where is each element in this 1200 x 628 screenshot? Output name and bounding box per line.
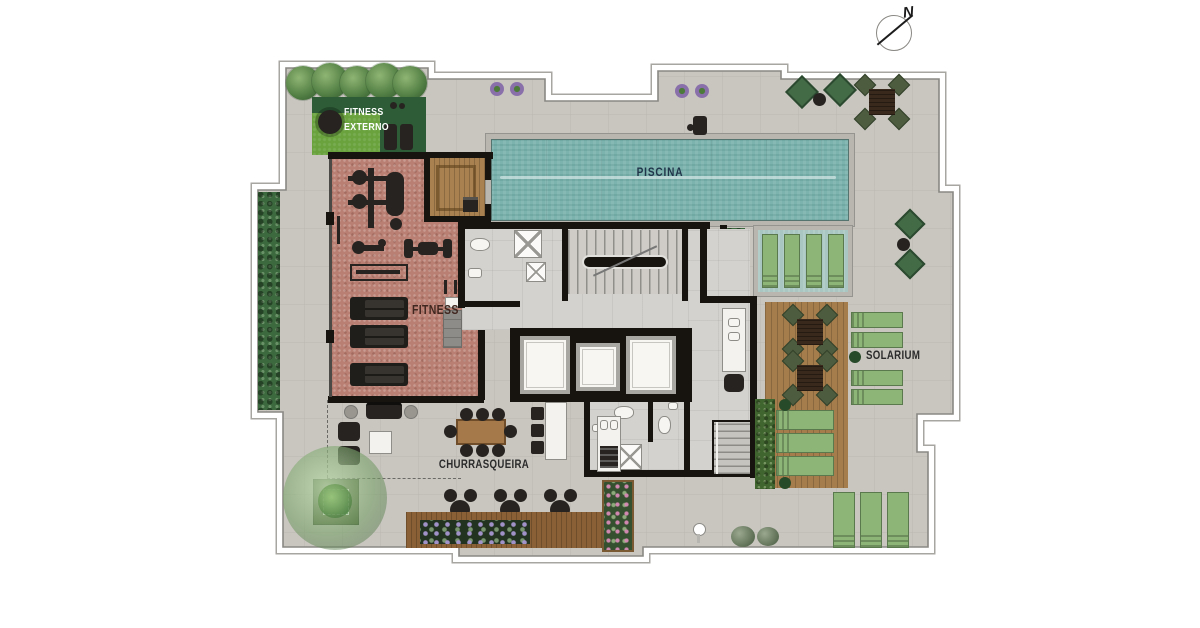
sun-lounger	[776, 456, 834, 476]
dining-chair	[476, 408, 489, 421]
in-pool-lounger	[828, 234, 844, 288]
side-table	[813, 93, 826, 106]
wall	[584, 396, 590, 476]
bush-icon	[757, 527, 779, 546]
sun-lounger	[887, 492, 909, 548]
smith-machine	[350, 264, 408, 281]
wall	[424, 158, 430, 222]
in-pool-lounger	[806, 234, 822, 288]
sun-lounger	[851, 370, 903, 386]
bistro-chair	[464, 489, 477, 502]
patio-table	[869, 89, 895, 115]
patio-table-set	[785, 353, 835, 403]
flower-pot-icon	[510, 82, 524, 96]
bbq-stool	[531, 424, 544, 437]
flower-planter	[420, 520, 530, 544]
sun-lounger	[833, 492, 855, 548]
treadmill	[350, 363, 408, 386]
sauna-heater	[463, 197, 478, 212]
dining-chair	[492, 444, 505, 457]
weight-plate	[404, 239, 413, 258]
bbq-counter	[545, 402, 567, 460]
compass-north-label: N	[902, 3, 915, 21]
shaft-x-box	[526, 262, 546, 282]
gym-bench	[418, 242, 438, 255]
elevator-cab	[626, 336, 676, 394]
elevator-cab	[520, 336, 570, 394]
sun-lounger	[851, 312, 903, 328]
hedge-strip-left	[258, 192, 280, 410]
sun-lounger	[776, 410, 834, 430]
treadmill-belt	[365, 328, 404, 345]
dining-chair	[444, 425, 457, 438]
dining-chair	[492, 408, 505, 421]
plant-pot-icon	[849, 351, 861, 363]
staircase-down	[712, 420, 752, 476]
wall-mounted-bar	[337, 216, 340, 244]
dining-chair	[476, 444, 489, 457]
light-pole-stem	[697, 534, 700, 543]
wall	[648, 396, 653, 442]
bbq-stool	[531, 407, 544, 420]
shaft-x-box	[618, 444, 642, 470]
gym-seat	[390, 218, 402, 230]
patio-table	[797, 319, 823, 345]
weight-plate	[352, 170, 367, 185]
solarium-label: SOLARIUM	[866, 350, 920, 362]
weight-plate	[352, 194, 367, 209]
churrasqueira-label: CHURRASQUEIRA	[430, 459, 538, 471]
sun-lounger	[851, 389, 903, 405]
grill-icon	[600, 446, 618, 468]
floorplan-canvas: FITNESS EXTERNO PISCINA	[0, 0, 1200, 628]
side-table	[897, 238, 910, 251]
outdoor-fitness-label-line1: FITNESS	[344, 106, 404, 118]
gym-machine	[352, 238, 386, 258]
dining-chair	[504, 425, 517, 438]
treadmill	[350, 297, 408, 320]
outdoor-fitness-label-line2: EXTERNO	[344, 121, 404, 133]
pouf	[344, 405, 358, 419]
flower-pot-icon	[675, 84, 689, 98]
gym-multistation	[344, 166, 408, 236]
plant-pot-icon	[779, 399, 791, 411]
dining-chair	[460, 408, 473, 421]
pool-ladder-icon	[693, 116, 707, 135]
stair-rail-line	[716, 422, 718, 474]
bistro-chair	[564, 489, 577, 502]
in-pool-lounger	[762, 234, 778, 288]
wall-post	[326, 330, 334, 343]
treadmill	[350, 325, 408, 348]
glass-wall	[329, 159, 332, 397]
sink-icon	[468, 268, 482, 278]
wall	[458, 301, 520, 307]
pool-label: PISCINA	[622, 165, 698, 179]
punching-bag-icon	[318, 110, 342, 134]
fitness-label: FITNESS	[412, 303, 459, 317]
treadmill-belt	[365, 366, 404, 383]
gym-bench	[386, 172, 404, 216]
sink-icon	[610, 420, 618, 430]
bistro-chair	[514, 489, 527, 502]
sink-icon	[728, 318, 740, 327]
gym-seat	[378, 239, 386, 247]
wall	[458, 222, 710, 229]
weight-plate	[443, 239, 452, 258]
in-pool-lounger	[784, 234, 800, 288]
sink-icon	[600, 420, 608, 430]
wall	[700, 222, 707, 302]
pool-ladder-icon	[687, 124, 694, 131]
wall	[458, 222, 465, 308]
dining-table	[456, 419, 506, 445]
coffee-table	[369, 431, 392, 454]
patio-table	[797, 365, 823, 391]
wall-post	[326, 212, 334, 225]
toilet-icon	[658, 416, 671, 434]
barbell	[356, 270, 400, 274]
sun-lounger	[860, 492, 882, 548]
armchair	[338, 422, 360, 441]
tree-icon	[393, 66, 427, 100]
outdoor-fitness-label: FITNESS EXTERNO	[344, 106, 416, 138]
flower-pot-icon	[695, 84, 709, 98]
bush-icon	[731, 526, 755, 547]
pouf	[404, 405, 418, 419]
bench-press	[404, 236, 452, 262]
garden-strip	[755, 399, 775, 489]
wall	[700, 296, 757, 303]
wall	[485, 204, 491, 222]
staircase	[568, 230, 682, 294]
patio-table-set	[857, 77, 907, 127]
bbq-stool	[531, 441, 544, 454]
wall	[328, 396, 484, 403]
dining-chair	[460, 444, 473, 457]
sink-icon	[728, 332, 740, 341]
flower-pot-icon	[490, 82, 504, 96]
kitchen-appliance	[724, 374, 744, 392]
shaft-x-box	[514, 230, 542, 258]
toilet-icon	[470, 238, 490, 251]
plant-pot-icon	[779, 477, 791, 489]
sun-lounger	[851, 332, 903, 348]
pool-area	[486, 134, 854, 226]
elevator-cab	[576, 343, 620, 391]
treadmill-belt	[365, 300, 404, 317]
flower-bed	[602, 480, 634, 552]
sun-lounger	[776, 433, 834, 453]
tree-canopy-core	[318, 484, 352, 518]
sofa	[366, 402, 402, 419]
wall	[485, 158, 491, 180]
wall	[682, 229, 688, 301]
wall	[684, 396, 690, 476]
sink-icon	[668, 402, 678, 410]
